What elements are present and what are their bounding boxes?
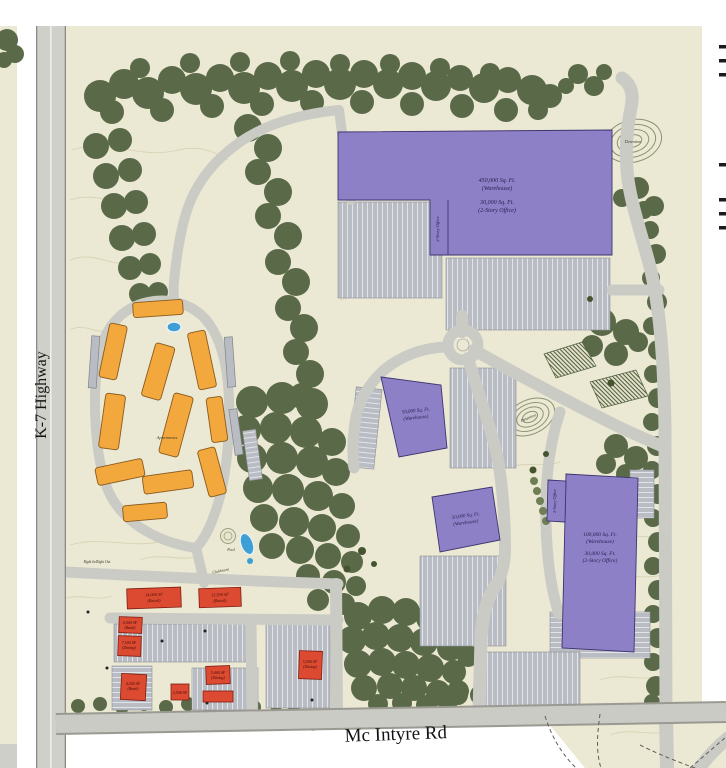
clubhouse-court [221,529,236,544]
pool-label: Pool [226,547,235,552]
west-frontage-pavement [0,744,17,768]
dining-5500-label-2: (Dining) [303,664,317,669]
parking-lot-north [446,258,610,330]
pool-north [167,322,181,332]
apartment-bar [122,502,167,522]
warehouse-large-label-4: (2-Story Office) [478,207,516,214]
warehouse-large-label-2: (Warehouse) [482,185,512,192]
parking-lot-northwest [338,202,442,298]
retail-14000-label-2: (Retail) [147,598,161,603]
dining-5000-label-2: (Dining) [211,675,225,680]
mcintyre-road-label: Mc Intyre Rd [344,722,448,747]
road-retail-north-south-a [251,620,252,712]
site-plan-page: 450,000 Sq. Ft. (Warehouse) 30,000 Sq. F… [0,0,726,768]
roundabout-island [457,339,469,351]
warehouse-right-label-3: 30,000 Sq. Ft. [583,551,615,557]
warehouse-right-wing-label: 2-Story Office [552,489,557,513]
access-note-label: Right In/Right Out [83,560,112,564]
warehouse-large-wing-label: 2-Story Office [435,216,440,241]
mcintyre-road [56,712,726,724]
warehouse-large-label-1: 450,000 Sq. Ft. [479,177,516,184]
site-plan-drawing: 450,000 Sq. Ft. (Warehouse) 30,000 Sq. F… [0,0,726,768]
warehouse-right-label-2: (Warehouse) [586,538,614,545]
spa [247,558,253,564]
west-frontage-strip [0,26,17,768]
road-retail-north-south-b [336,584,337,712]
warehouse-lower [432,487,500,552]
apartment-bar [133,299,184,317]
retail-strip [203,691,233,702]
warehouse-right-label-1: 100,000 Sq. Ft. [583,532,617,538]
parking-retail-e [482,652,580,706]
detention-label-northeast: Detention [624,139,642,144]
bank-4000-label-2: (Bank) [125,625,137,630]
bank-4500-label-2: (Bank) [128,686,140,691]
dining-7500-label-2: (Dining) [122,645,136,650]
warehouse-large-label-3: 30,000 Sq. Ft. [479,200,514,206]
road-retail-east-west-b [110,618,338,620]
apartments-label: Apartments [156,435,178,440]
cropped-legend-text [719,45,726,230]
warehouse-right-label-4: (2-Story Office) [583,557,618,564]
tree-clump-northwest-corner [0,29,24,68]
k7-highway-label: K-7 Highway [33,351,50,439]
retail-12500-label-2: (Retail) [213,598,227,603]
